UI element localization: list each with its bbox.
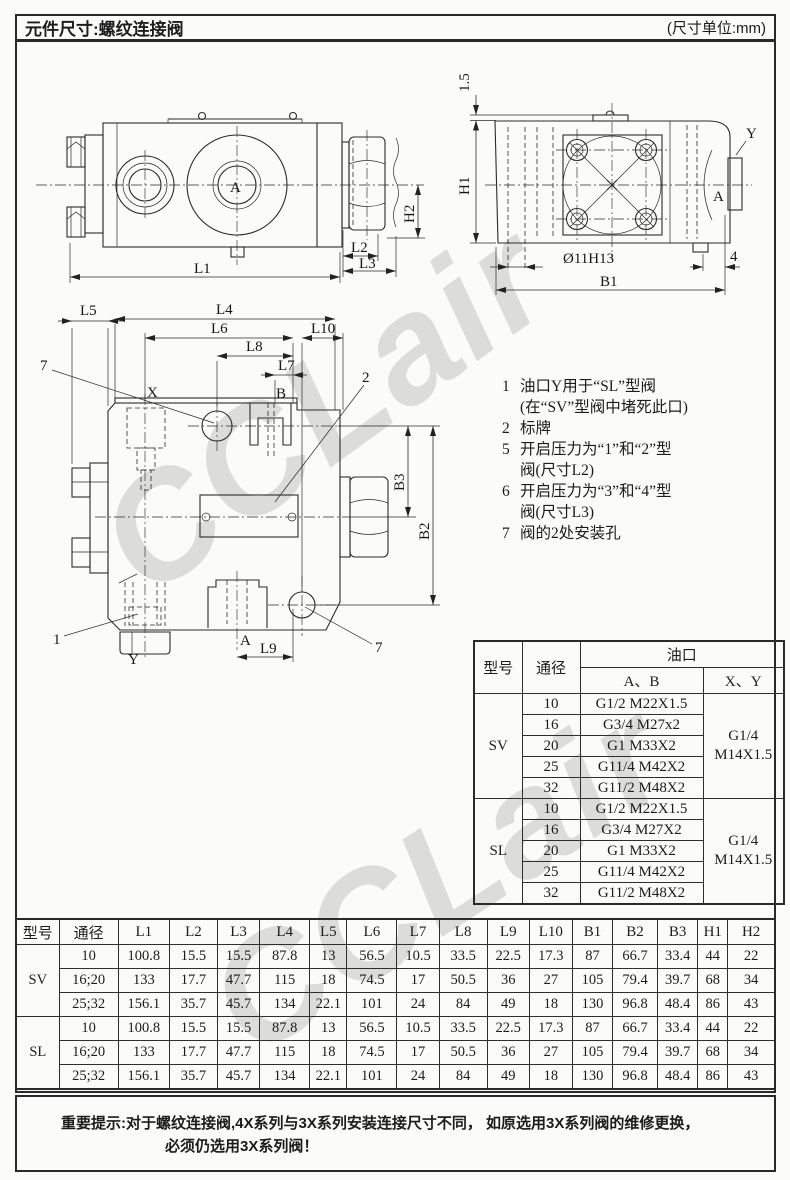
dim-value-cell: 36 [487,969,529,993]
dim-value-cell: 22.5 [487,1017,529,1041]
note-item: 6开启压力为“3”和“4”型阀(尺寸L3) [502,481,787,523]
dim-value-cell: 33.4 [658,945,698,969]
dim-table-row: 16;2013317.747.71151874.51750.5362710579… [16,1041,775,1065]
dim-table-body: SV10100.815.515.587.81356.510.533.522.51… [16,945,775,1090]
dim-value-cell: 66.7 [613,945,658,969]
dim-value-cell: 15.5 [169,945,217,969]
note-text: 阀的2处安装孔 [520,523,621,544]
port-xy-line: G1/4 [705,727,783,746]
dim-value-cell: 45.7 [218,1065,260,1090]
port-ab-cell: G1/2 M22X1.5 [580,694,703,715]
port-size-cell: 25 [522,862,580,883]
port-header-xy: X、Y [703,668,784,694]
dim-label-4: 4 [730,249,738,265]
x-port-cavity [127,408,165,490]
dim-table-row: 25;32156.135.745.713422.1101248449181309… [16,1065,775,1090]
drawing-front-view: L5 L4 L6 L10 L8 L7 X B A L9 Y 7 2 1 7 B3… [28,306,473,678]
port-size-cell: 20 [522,841,580,862]
dim-value-cell: 134 [260,993,310,1017]
dim-value-cell: 44 [698,1017,728,1041]
dim-value-cell: 10.5 [397,1017,439,1041]
port-table-body: SV10G1/2 M22X1.5G1/4M14X1.516G3/4 M27x22… [474,694,784,905]
dim-value-cell: 105 [572,969,612,993]
dim-value-cell: 39.7 [658,969,698,993]
dim-label-l4: L4 [216,302,233,318]
dim-value-cell: 13 [310,1017,347,1041]
note-text: 开启压力为“1”和“2”型阀(尺寸L2) [520,439,672,481]
dim-value-cell: 10 [59,945,118,969]
y-port-cavity [119,574,165,626]
port-y-label: Y [746,126,757,142]
page: { "header": {"title": "元件尺寸:螺纹连接阀", "uni… [0,0,790,1180]
note-line: (在“SV”型阀中堵死此口) [520,397,688,418]
note-line: 开启压力为“1”和“2”型 [520,439,672,460]
front-view-dimensions [52,319,440,662]
port-size-cell: 32 [522,883,580,905]
port-xy-cell: G1/4M14X1.5 [703,799,784,905]
dim-label-1-5: 1.5 [457,73,473,92]
dim-model-cell: SV [16,945,59,1017]
dim-value-cell: 87 [572,1017,612,1041]
dim-table-row: 16;2013317.747.71151874.51750.5362710579… [16,969,775,993]
dim-value-cell: 10.5 [397,945,439,969]
dim-header-cell: L1 [118,919,169,945]
note-number: 5 [502,439,520,481]
dim-value-cell: 84 [439,993,487,1017]
port-table-row: SV10G1/2 M22X1.5G1/4M14X1.5 [474,694,784,715]
warning-line-1: 重要提示:对于螺纹连接阀,4X系列与3X系列安装连接尺寸不同， 如原选用3X系列… [61,1112,744,1135]
port-ab-cell: G1 M33X2 [580,736,703,757]
dim-value-cell: 17.7 [169,969,217,993]
dim-value-cell: 105 [572,1041,612,1065]
dim-header-cell: B3 [658,919,698,945]
dim-value-cell: 34 [728,969,775,993]
dim-value-cell: 33.5 [439,945,487,969]
dim-table-row: 25;32156.135.745.713422.1101248449181309… [16,993,775,1017]
dim-value-cell: 87.8 [260,945,310,969]
port-x-label: X [147,385,158,401]
dim-value-cell: 133 [118,969,169,993]
dim-header-cell: 通径 [59,919,118,945]
dim-value-cell: 36 [487,1041,529,1065]
dim-header-cell: 型号 [16,919,59,945]
dim-value-cell: 100.8 [118,1017,169,1041]
dim-value-cell: 96.8 [613,993,658,1017]
warning-box: 重要提示:对于螺纹连接阀,4X系列与3X系列安装连接尺寸不同， 如原选用3X系列… [15,1095,776,1172]
warning-line-2: 必须仍选用3X系列阀！ [165,1135,744,1158]
dim-value-cell: 22.1 [310,993,347,1017]
dim-header-cell: H1 [698,919,728,945]
warning-text-1: 对于螺纹连接阀,4X系列与3X系列安装连接尺寸不同， 如原选用3X系列阀的维修更… [126,1115,699,1132]
dim-value-cell: 130 [572,1065,612,1090]
dim-header-cell: L8 [439,919,487,945]
dim-header-cell: L10 [529,919,572,945]
note-number: 1 [502,376,520,418]
port-size-cell: 25 [522,757,580,778]
end-view-centerlines [485,103,752,260]
port-size-cell: 20 [522,736,580,757]
note-text: 油口Y用于“SL”型阀(在“SV”型阀中堵死此口) [520,376,688,418]
dim-header-cell: L5 [310,919,347,945]
port-xy-cell: G1/4M14X1.5 [703,694,784,799]
dim-value-cell: 17.7 [169,1041,217,1065]
front-view-centerlines [95,394,345,660]
port-ab-cell: G11/4 M42X2 [580,757,703,778]
b-port-cavity [250,403,291,456]
dim-value-cell: 43 [728,993,775,1017]
dim-value-cell: 86 [698,1065,728,1090]
dim-value-cell: 156.1 [118,1065,169,1090]
dim-value-cell: 79.4 [613,1041,658,1065]
dim-value-cell: 47.7 [218,1041,260,1065]
dim-value-cell: 101 [347,1065,397,1090]
note-line: 标牌 [520,418,551,439]
port-table-row: SL10G1/2 M22X1.5G1/4M14X1.5 [474,799,784,820]
dim-value-cell: 100.8 [118,945,169,969]
dim-value-cell: 45.7 [218,993,260,1017]
dim-value-cell: 22.1 [310,1065,347,1090]
note-number: 6 [502,481,520,523]
dim-label-b1: B1 [600,274,618,290]
drawing-end-view: 1.5 H1 Ø11H13 B1 4 Y A [450,55,785,307]
dim-value-cell: 34 [728,1041,775,1065]
port-header-port: 油口 [580,641,784,668]
note-line: 阀(尺寸L2) [520,460,672,481]
dim-value-cell: 22.5 [487,945,529,969]
dim-header-cell: L6 [347,919,397,945]
dim-value-cell: 24 [397,993,439,1017]
dim-table: 型号通径L1L2L3L4L5L6L7L8L9L10B1B2B3H1H2 SV10… [15,918,776,1090]
header-bar: 元件尺寸:螺纹连接阀 (尺寸单位:mm) [15,14,776,41]
dim-label-l3: L3 [359,256,376,272]
port-xy-line: M14X1.5 [705,746,783,765]
dim-value-cell: 27 [529,969,572,993]
port-ab-cell: G1 M33X2 [580,841,703,862]
dim-value-cell: 16;20 [59,1041,118,1065]
note-item: 5开启压力为“1”和“2”型阀(尺寸L2) [502,439,787,481]
front-view-outline [72,398,388,654]
dim-value-cell: 115 [260,969,310,993]
note-text: 开启压力为“3”和“4”型阀(尺寸L3) [520,481,672,523]
dim-value-cell: 24 [397,1065,439,1090]
dim-label-b2: B2 [417,522,433,540]
dim-value-cell: 50.5 [439,969,487,993]
dim-value-cell: 18 [529,1065,572,1090]
dim-value-cell: 18 [310,1041,347,1065]
dim-label-hole-dia: Ø11H13 [563,251,614,267]
dim-value-cell: 10 [59,1017,118,1041]
dim-header-cell: L2 [169,919,217,945]
dim-header-cell: L4 [260,919,310,945]
port-y-label: Y [128,652,139,668]
dim-value-cell: 15.5 [169,1017,217,1041]
port-size-cell: 10 [522,694,580,715]
notes-list: 1油口Y用于“SL”型阀(在“SV”型阀中堵死此口)2标牌5开启压力为“1”和“… [502,376,787,544]
dim-label-h1: H1 [457,177,473,195]
dim-value-cell: 33.4 [658,1017,698,1041]
dim-label-h2: H2 [402,205,418,223]
dim-value-cell: 101 [347,993,397,1017]
callout-7-top: 7 [40,358,48,374]
port-header-ab: A、B [580,668,703,694]
note-line: 阀的2处安装孔 [520,523,621,544]
dim-label-l1: L1 [194,261,211,277]
dim-value-cell: 18 [529,993,572,1017]
dim-header-cell: L9 [487,919,529,945]
port-table: 型号 通径 油口 A、B X、Y SV10G1/2 M22X1.5G1/4M14… [473,640,785,905]
port-ab-cell: G11/4 M42X2 [580,862,703,883]
dim-table-row: SV10100.815.515.587.81356.510.533.522.51… [16,945,775,969]
dim-value-cell: 66.7 [613,1017,658,1041]
dim-table-header-row: 型号通径L1L2L3L4L5L6L7L8L9L10B1B2B3H1H2 [16,919,775,945]
note-item: 7阀的2处安装孔 [502,523,787,544]
port-b-label: B [276,386,286,402]
dim-label-l9: L9 [260,641,277,657]
dim-value-cell: 87 [572,945,612,969]
dim-header-cell: L3 [218,919,260,945]
port-a-label: A [240,633,251,649]
dim-value-cell: 133 [118,1041,169,1065]
port-table-head: 型号 通径 油口 A、B X、Y [474,641,784,694]
dim-value-cell: 27 [529,1041,572,1065]
dim-header-cell: B2 [613,919,658,945]
port-xy-line: G1/4 [705,832,783,851]
dim-value-cell: 56.5 [347,945,397,969]
dim-value-cell: 87.8 [260,1017,310,1041]
note-number: 7 [502,523,520,544]
port-model-cell: SV [474,694,522,799]
note-item: 2标牌 [502,418,787,439]
warning-prefix: 重要提示: [61,1115,126,1132]
dim-value-cell: 15.5 [218,945,260,969]
dim-label-l7: L7 [278,358,295,374]
dim-value-cell: 48.4 [658,1065,698,1090]
dim-value-cell: 115 [260,1041,310,1065]
port-ab-cell: G1/2 M22X1.5 [580,799,703,820]
dim-label-b3: B3 [392,473,408,491]
dim-value-cell: 16;20 [59,969,118,993]
dim-value-cell: 13 [310,945,347,969]
dim-header-cell: L7 [397,919,439,945]
dim-value-cell: 17 [397,1041,439,1065]
dim-label-l5: L5 [80,303,97,319]
dim-value-cell: 68 [698,1041,728,1065]
drawing-side-view: A L1 L2 L3 H2 [30,58,430,296]
note-number: 2 [502,418,520,439]
dim-value-cell: 156.1 [118,993,169,1017]
dim-value-cell: 74.5 [347,969,397,993]
port-size-cell: 32 [522,778,580,799]
dim-label-l10: L10 [311,321,335,337]
dim-header-cell: B1 [572,919,612,945]
dim-value-cell: 25;32 [59,993,118,1017]
dim-label-l6: L6 [211,321,228,337]
dim-model-cell: SL [16,1017,59,1090]
dim-value-cell: 79.4 [613,969,658,993]
page-title: 元件尺寸:螺纹连接阀 [25,15,184,40]
dim-value-cell: 15.5 [218,1017,260,1041]
note-line: 开启压力为“3”和“4”型 [520,481,672,502]
dim-value-cell: 47.7 [218,969,260,993]
dim-value-cell: 86 [698,993,728,1017]
port-header-size: 通径 [522,641,580,694]
dim-value-cell: 35.7 [169,1065,217,1090]
note-text: 标牌 [520,418,551,439]
port-model-cell: SL [474,799,522,905]
dim-value-cell: 44 [698,945,728,969]
dim-value-cell: 33.5 [439,1017,487,1041]
dim-value-cell: 35.7 [169,993,217,1017]
dim-value-cell: 22 [728,1017,775,1041]
dim-value-cell: 25;32 [59,1065,118,1090]
dim-value-cell: 49 [487,1065,529,1090]
dim-value-cell: 56.5 [347,1017,397,1041]
dim-value-cell: 50.5 [439,1041,487,1065]
port-xy-line: M14X1.5 [705,851,783,870]
dim-value-cell: 68 [698,969,728,993]
dim-value-cell: 96.8 [613,1065,658,1090]
dim-value-cell: 49 [487,993,529,1017]
dim-value-cell: 48.4 [658,993,698,1017]
dim-label-l2: L2 [351,240,368,256]
port-a-label: A [230,180,241,196]
port-ab-cell: G3/4 M27x2 [580,715,703,736]
dim-value-cell: 17.3 [529,1017,572,1041]
port-size-cell: 10 [522,799,580,820]
dim-value-cell: 39.7 [658,1041,698,1065]
note-line: 阀(尺寸L3) [520,502,672,523]
port-size-cell: 16 [522,715,580,736]
dim-value-cell: 17.3 [529,945,572,969]
dim-table-row: SL10100.815.515.587.81356.510.533.522.51… [16,1017,775,1041]
dim-value-cell: 22 [728,945,775,969]
dim-label-l8: L8 [246,339,263,355]
a-port-cavity [208,580,267,628]
note-line: 油口Y用于“SL”型阀 [520,376,688,397]
port-ab-cell: G3/4 M27X2 [580,820,703,841]
callout-7-bottom: 7 [375,640,383,656]
dim-header-cell: H2 [728,919,775,945]
port-a-label: A [713,189,724,205]
port-ab-cell: G11/2 M48X2 [580,883,703,905]
dim-value-cell: 130 [572,993,612,1017]
end-view-outline [495,111,742,271]
port-size-cell: 16 [522,820,580,841]
dim-value-cell: 43 [728,1065,775,1090]
dim-value-cell: 18 [310,969,347,993]
dim-value-cell: 84 [439,1065,487,1090]
dim-value-cell: 74.5 [347,1041,397,1065]
port-ab-cell: G11/2 M48X2 [580,778,703,799]
note-item: 1油口Y用于“SL”型阀(在“SV”型阀中堵死此口) [502,376,787,418]
callout-2: 2 [362,370,370,386]
port-header-model: 型号 [474,641,522,694]
dim-value-cell: 134 [260,1065,310,1090]
callout-1: 1 [53,632,61,648]
unit-note: (尺寸单位:mm) [667,17,766,38]
dim-value-cell: 17 [397,969,439,993]
